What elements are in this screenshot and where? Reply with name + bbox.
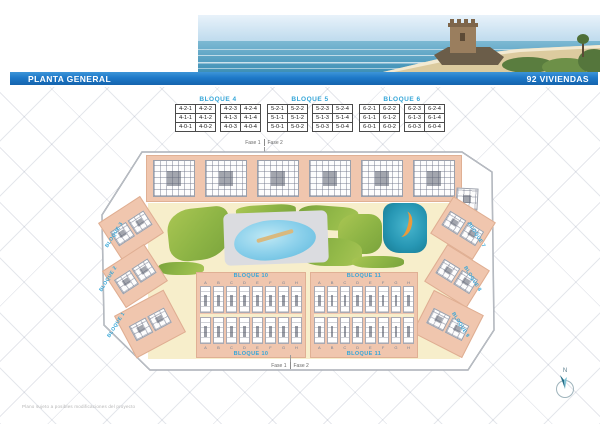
phase-boundary-tick-bottom xyxy=(290,355,291,362)
unit-cell: 6-1-1 xyxy=(360,114,380,123)
fase-2-label: Fase 2 xyxy=(268,140,283,146)
unit-grid: 6-2-16-2-26-2-36-2-46-1-16-1-26-1-36-1-4… xyxy=(359,104,445,132)
north-label: N xyxy=(563,368,567,374)
unit-cell: 5-1-3 xyxy=(313,114,333,123)
table-title: BLOQUE 6 xyxy=(358,96,446,104)
title-bar: PLANTA GENERAL 92 VIVIENDAS xyxy=(10,72,598,85)
north-compass: N xyxy=(550,364,580,402)
unit-cell: 4-2-1 xyxy=(176,105,196,114)
table-title: BLOQUE 4 xyxy=(174,96,262,104)
unit-cell: 4-2-3 xyxy=(221,105,241,114)
unit-cell: 4-2-2 xyxy=(196,105,216,114)
unit-cell: 5-0-4 xyxy=(333,123,353,132)
unit-cell: 4-0-2 xyxy=(196,123,216,132)
unit-cell: 6-0-3 xyxy=(405,123,425,132)
unit-cell: 5-0-1 xyxy=(268,123,288,132)
unit-cell: 6-0-2 xyxy=(380,123,400,132)
unit-cell: 5-2-2 xyxy=(288,105,308,114)
page-title: PLANTA GENERAL xyxy=(28,74,111,84)
unit-table-bloque-4: BLOQUE 4 4-2-14-2-24-2-34-2-44-1-14-1-24… xyxy=(174,96,262,132)
unit-cell: 5-0-2 xyxy=(288,123,308,132)
phase-label-top: Fase 1 Fase 2 xyxy=(231,139,297,146)
unit-grid: 5-2-15-2-25-2-35-2-45-1-15-1-25-1-35-1-4… xyxy=(267,104,353,132)
table-title: BLOQUE 5 xyxy=(266,96,354,104)
site-plan-boundary xyxy=(98,148,500,372)
unit-cell: 4-2-4 xyxy=(241,105,261,114)
units-count-label: 92 VIVIENDAS xyxy=(527,74,589,84)
unit-cell: 4-1-2 xyxy=(196,114,216,123)
fase-1-label: Fase 1 xyxy=(245,140,260,146)
beach-tower-photo-illustration xyxy=(198,15,600,72)
unit-cell: 6-2-1 xyxy=(360,105,380,114)
unit-cell: 5-1-4 xyxy=(333,114,353,123)
unit-grid: 4-2-14-2-24-2-34-2-44-1-14-1-24-1-34-1-4… xyxy=(175,104,261,132)
header-photo xyxy=(198,15,600,72)
fase-2-label: Fase 2 xyxy=(294,363,309,369)
unit-cell: 5-0-3 xyxy=(313,123,333,132)
unit-cell: 6-1-2 xyxy=(380,114,400,123)
unit-table-bloque-6: BLOQUE 6 6-2-16-2-26-2-36-2-46-1-16-1-26… xyxy=(358,96,446,132)
unit-cell: 4-1-1 xyxy=(176,114,196,123)
unit-cell: 5-2-3 xyxy=(313,105,333,114)
unit-cell: 6-0-1 xyxy=(360,123,380,132)
unit-cell: 5-1-1 xyxy=(268,114,288,123)
unit-cell: 4-1-3 xyxy=(221,114,241,123)
fase-1-label: Fase 1 xyxy=(271,363,286,369)
phase-divider xyxy=(264,139,265,146)
unit-cell: 6-2-4 xyxy=(425,105,445,114)
unit-cell: 4-0-3 xyxy=(221,123,241,132)
unit-cell: 6-2-2 xyxy=(380,105,400,114)
unit-cell: 6-0-4 xyxy=(425,123,445,132)
unit-table-bloque-5: BLOQUE 5 5-2-15-2-25-2-35-2-45-1-15-1-25… xyxy=(266,96,354,132)
phase-divider xyxy=(290,362,291,369)
phase-label-bottom: Fase 1 Fase 2 xyxy=(257,362,323,369)
unit-cell: 5-1-2 xyxy=(288,114,308,123)
unit-cell: 5-2-1 xyxy=(268,105,288,114)
unit-cell: 4-0-1 xyxy=(176,123,196,132)
unit-cell: 6-1-4 xyxy=(425,114,445,123)
unit-cell: 4-1-4 xyxy=(241,114,261,123)
unit-cell: 5-2-4 xyxy=(333,105,353,114)
unit-cell: 6-2-3 xyxy=(405,105,425,114)
disclaimer-text: Plano sujeto a posibles modificaciones d… xyxy=(22,404,135,409)
unit-cell: 6-1-3 xyxy=(405,114,425,123)
unit-cell: 4-0-4 xyxy=(241,123,261,132)
